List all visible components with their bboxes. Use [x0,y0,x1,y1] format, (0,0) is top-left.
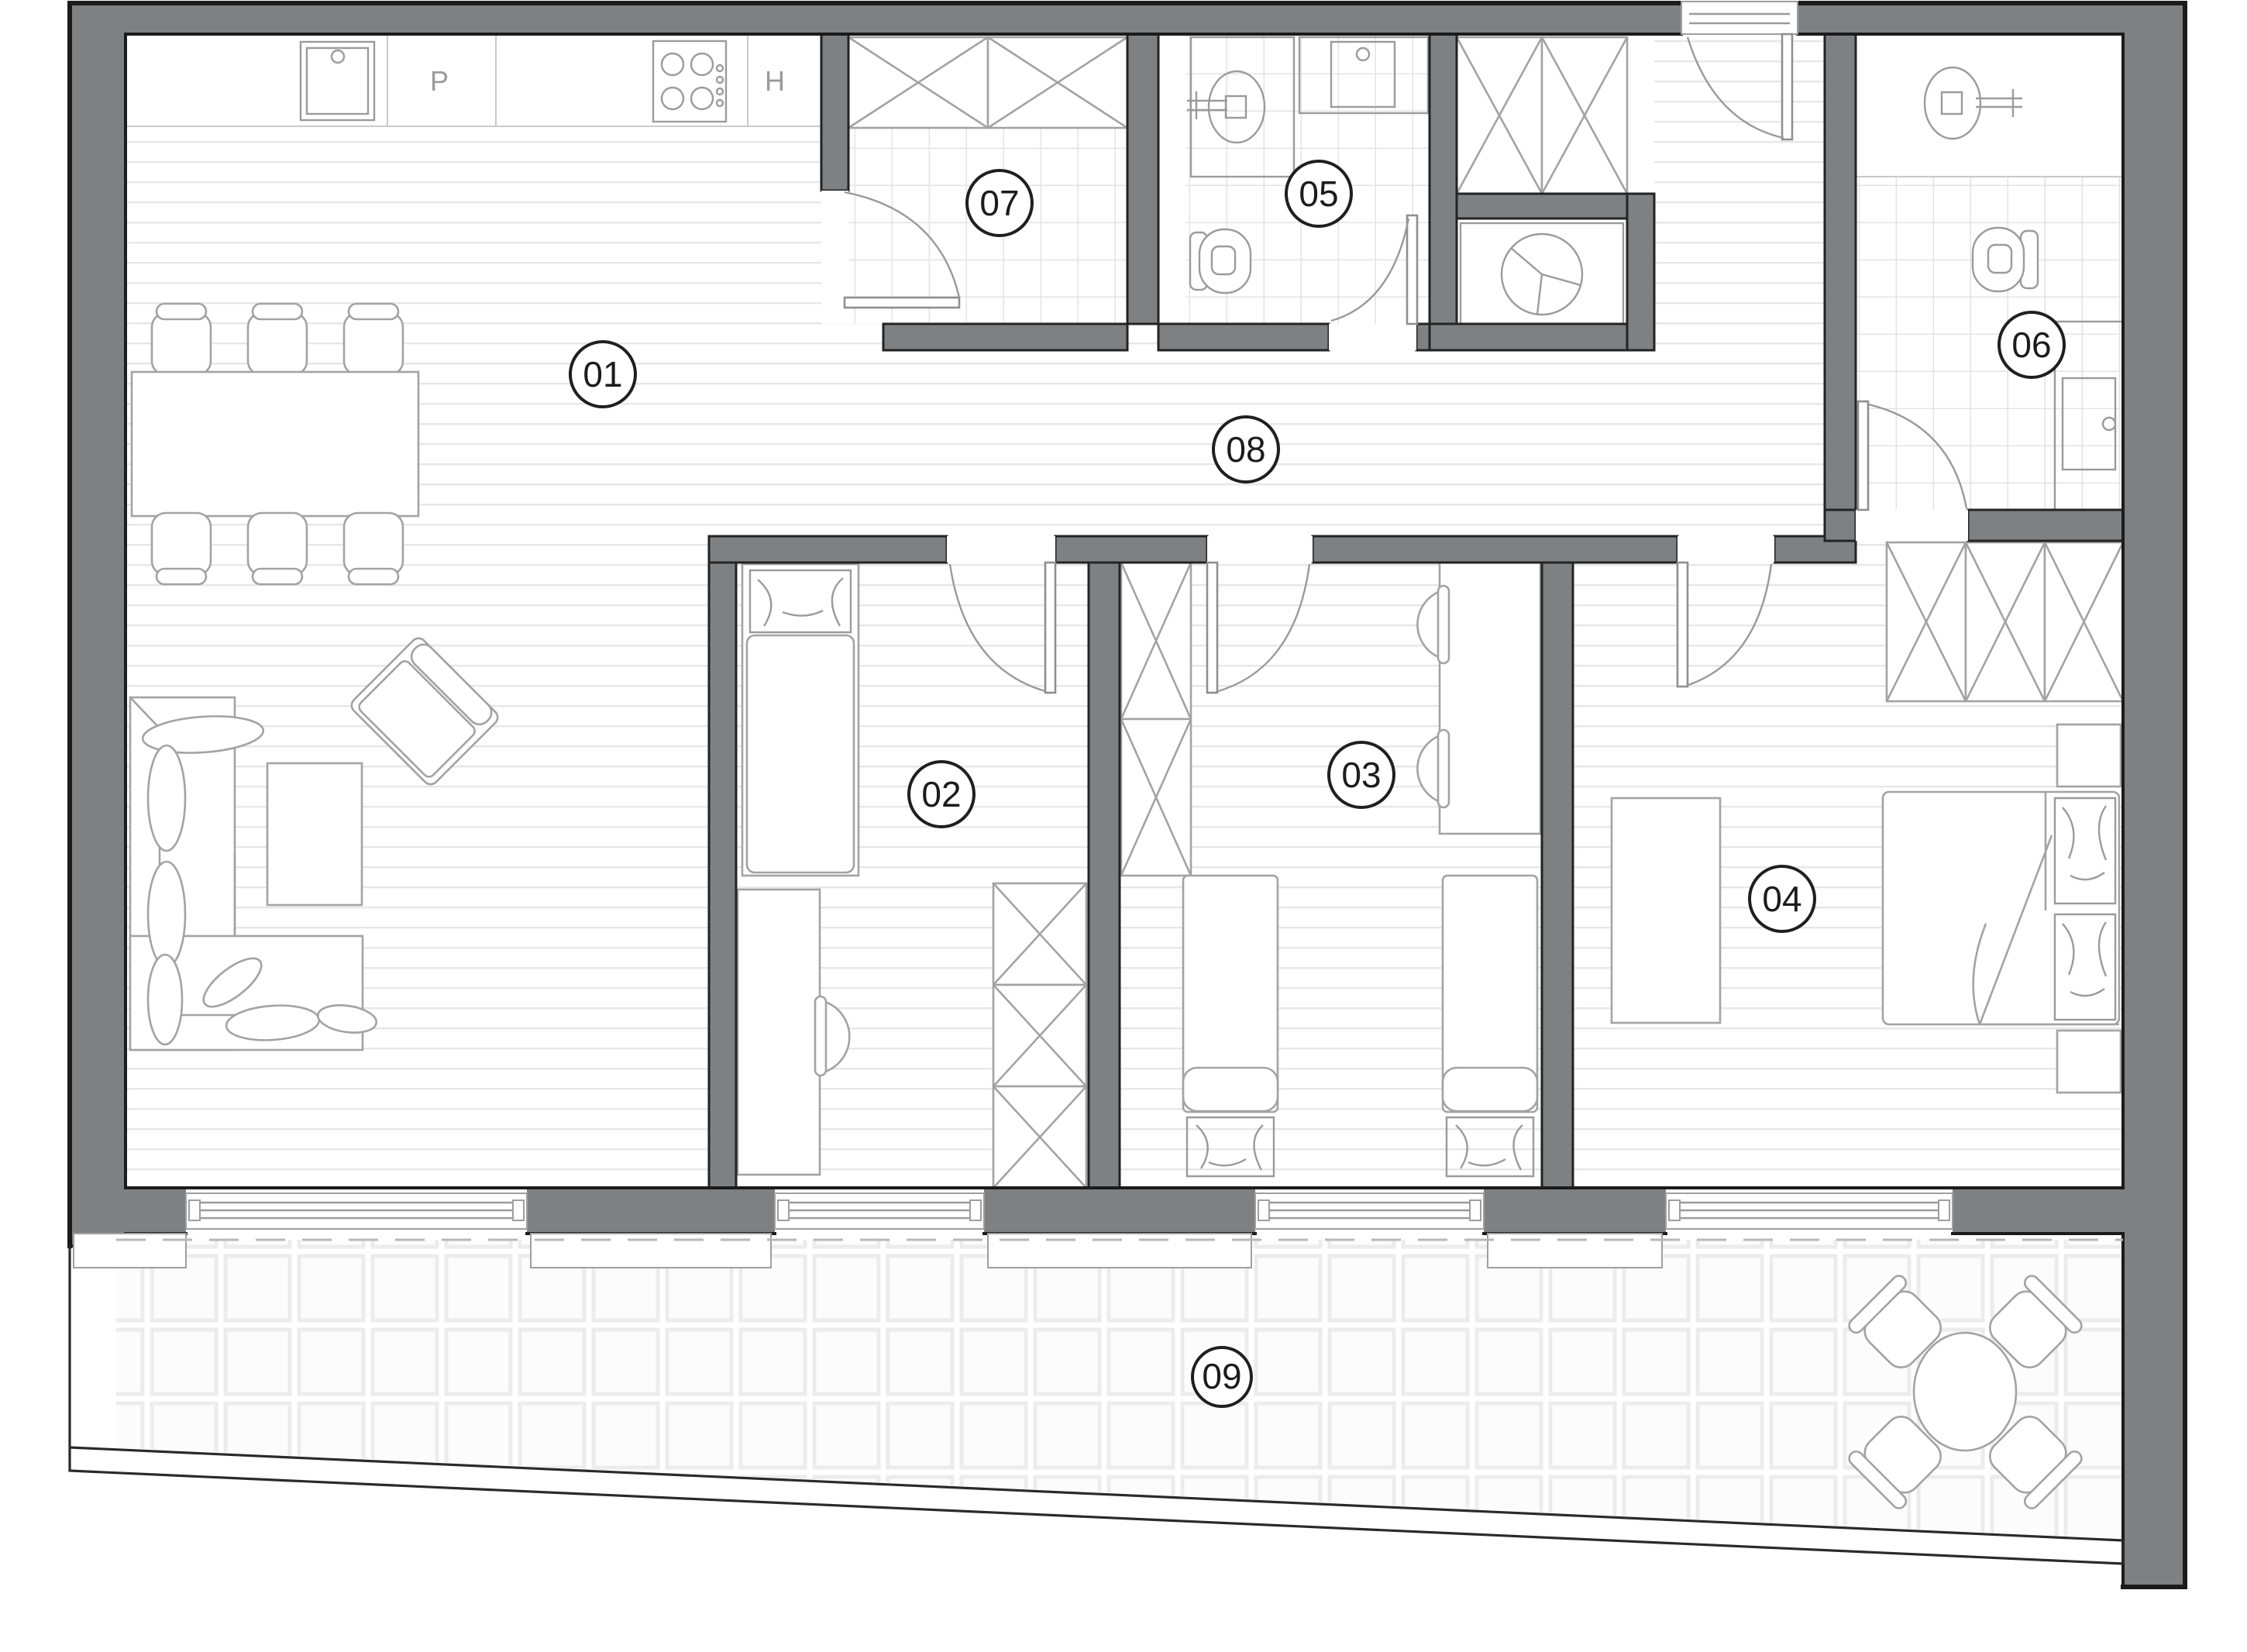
label-room-06: 06 [1999,312,2064,377]
svg-text:09: 09 [1202,1356,1241,1396]
svg-text:08: 08 [1226,429,1265,470]
wall-right [2123,3,2185,1587]
bed-single-02 [742,564,859,876]
wall-02-03 [1089,563,1120,1188]
desk-02 [738,890,820,1175]
dining-chairs-top [152,304,403,375]
svg-text:01: 01 [583,354,622,394]
coffee-table [267,763,362,905]
wall-01-02 [709,563,736,1188]
label-room-03: 03 [1329,742,1394,807]
label-room-02: 02 [909,762,974,827]
svg-text:05: 05 [1299,174,1338,214]
floor-bath06-tiles [1856,177,2123,510]
window-living [186,1193,527,1229]
wardrobe-07 [848,37,1127,128]
floor-plan: P H [0,0,2247,1652]
dining-chairs-bottom [152,513,403,584]
wall-05-nook [1430,34,1457,324]
toilet-05 [1190,229,1251,293]
wall-top-left [70,3,1681,34]
floor-hallway [848,324,1825,536]
shower-06 [1925,67,2022,139]
svg-text:03: 03 [1341,755,1381,795]
label-room-07: 07 [967,170,1032,236]
wall-03-04 [1542,563,1573,1188]
svg-text:04: 04 [1762,879,1801,919]
wardrobe-02 [993,883,1086,1188]
wall-01-07 [821,34,848,191]
svg-text:06: 06 [2011,325,2051,365]
floor-terrace-tiles [116,1240,2123,1542]
kitchen-counter: P H [126,34,821,126]
label-room-09: 09 [1192,1347,1251,1406]
wall-hall-06 [1825,34,1856,510]
nightstand-04b [2057,1031,2121,1093]
svg-text:07: 07 [979,183,1019,223]
wardrobe-03 [1121,563,1191,876]
wardrobe-04 [1887,542,2123,701]
wall-hall-rooms [709,536,947,563]
dining-set [132,304,418,584]
bed-double-04 [1883,792,2119,1024]
dishwasher-label: P [430,65,449,97]
toilet-06 [1973,228,2038,291]
dining-table [132,372,418,516]
label-room-08: 08 [1213,417,1278,482]
oven-label: H [765,65,785,97]
window-room02 [775,1193,984,1229]
terrace-table [1914,1333,2016,1451]
wall-07-05 [1127,34,1158,324]
desk-03 [1440,563,1540,834]
hall-wardrobe [1457,37,1627,194]
label-room-05: 05 [1286,161,1351,226]
wall-left [70,3,126,1246]
nightstand-04a [2057,724,2121,786]
svg-text:02: 02 [921,774,961,814]
desk-04 [1612,798,1720,1023]
label-room-01: 01 [570,342,635,407]
label-room-04: 04 [1750,866,1815,931]
wall-06-04 [1968,510,2123,541]
washing-machine [1461,223,1623,325]
window-room03 [1255,1193,1484,1229]
floor-kitchen-side [709,126,821,536]
window-room04 [1666,1193,1953,1229]
floor-hall-leg [1654,34,1825,350]
